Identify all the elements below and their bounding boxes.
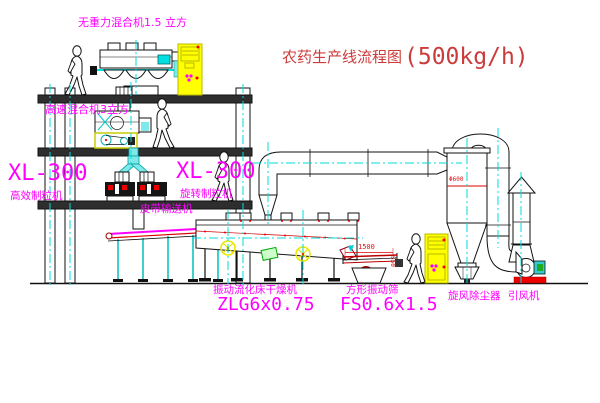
- fan-base: [514, 277, 546, 283]
- control-cabinet: [425, 234, 448, 283]
- page-title: 农药生产线流程图 (500kg/h): [282, 44, 529, 70]
- valve-icon: [158, 55, 170, 64]
- control-cabinet: [178, 44, 202, 95]
- label-fan: 引风机: [508, 291, 540, 302]
- label-xl300-left: XL-300: [8, 163, 87, 185]
- dimension-screen-length: 1500: [358, 244, 375, 251]
- person-figure: [404, 234, 425, 283]
- label-granulator-left: 高效制粒机: [10, 191, 63, 202]
- label-dryer-model: ZLG6x0.75: [217, 296, 315, 314]
- label-xl300-right: XL-300: [176, 161, 255, 183]
- exhaust-duct: [259, 149, 447, 220]
- pesticide-line-flow-diagram: 农药生产线流程图 (500kg/h) 无重力混合机1.5 立方 高速混合机3立方…: [0, 0, 600, 403]
- dimension-cyclone: Φ600: [449, 177, 463, 183]
- person-figure: [153, 99, 174, 148]
- title-text: 农药生产线流程图: [282, 46, 402, 70]
- label-belt-conveyor: 皮带输送机: [140, 204, 193, 215]
- label-high-speed-mixer: 高速混合机3立方: [45, 104, 129, 115]
- title-capacity: (500kg/h): [404, 44, 529, 70]
- granulator-left: [105, 172, 135, 201]
- granulator-right: [137, 172, 167, 201]
- label-gravity-mixer: 无重力混合机1.5 立方: [78, 17, 187, 28]
- label-granulator-right: 旋转制粒机: [180, 189, 233, 200]
- label-cyclone: 旋风除尘器: [448, 291, 501, 302]
- fluid-bed-dryer: [196, 213, 359, 282]
- dimension-screen-height: 550: [389, 256, 395, 267]
- label-screen-model: FS0.6x1.5: [340, 296, 438, 314]
- column: [236, 88, 250, 283]
